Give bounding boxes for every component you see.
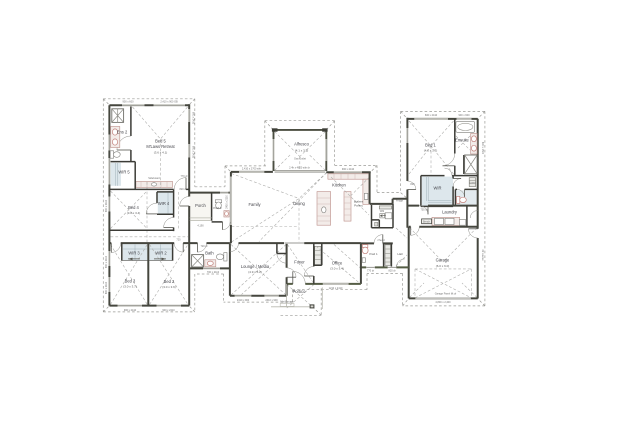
svg-text:2410 x 2110: 2410 x 2110 [226,195,229,209]
svg-text:Bed 2: Bed 2 [164,279,175,284]
svg-text:WM: WM [380,210,384,213]
svg-text:900 x 2410: 900 x 2410 [124,309,137,312]
svg-text:WIR 2: WIR 2 [155,251,167,256]
svg-text:Office: Office [332,261,343,266]
svg-text:Foyer: Foyer [294,260,305,265]
svg-text:(3.0 x 3.7): (3.0 x 3.7) [123,285,137,289]
svg-text:820 dr: 820 dr [388,270,395,273]
svg-text:Pantry: Pantry [354,203,363,207]
svg-text:(4.1 x 3.5): (4.1 x 3.5) [295,148,309,152]
svg-text:Mat Recess: Mat Recess [280,300,294,303]
svg-text:4,190: 4,190 [197,225,204,228]
svg-text:2,410 x 900 OB: 2,410 x 900 OB [160,101,178,104]
svg-text:Portico: Portico [293,289,306,294]
svg-text:700 x 2110: 700 x 2110 [207,271,220,274]
svg-text:820: 820 [410,183,415,186]
svg-text:Kitchen: Kitchen [332,182,346,187]
svg-text:Garage Panel lift dr: Garage Panel lift dr [435,293,457,296]
svg-text:(3.6 x 4.1): (3.6 x 4.1) [154,151,168,155]
svg-text:600 x 2110: 600 x 2110 [105,281,108,294]
svg-text:Family: Family [248,202,261,207]
svg-text:Bath: Bath [205,251,214,256]
svg-text:Ensuite: Ensuite [455,138,469,143]
svg-text:WIR 5: WIR 5 [118,169,130,174]
svg-text:Lounge / Media: Lounge / Media [241,264,270,269]
svg-text:M'Laws Retreat: M'Laws Retreat [146,144,175,149]
svg-text:Linen: Linen [469,181,476,184]
svg-text:720: 720 [176,239,181,242]
svg-text:2410 x 900: 2410 x 900 [265,299,278,302]
svg-text:Fridge: Fridge [396,200,404,203]
svg-text:Ens 2: Ens 2 [117,129,128,134]
svg-text:WIR: WIR [434,185,442,190]
svg-text:720 dr: 720 dr [200,245,207,248]
svg-text:600 x 2410: 600 x 2410 [425,114,438,117]
svg-text:WIR 4: WIR 4 [158,201,170,206]
svg-text:Gas Outlet: Gas Outlet [294,157,306,160]
svg-text:Pwd 1: Pwd 1 [369,252,378,256]
svg-text:Pwd 2: Pwd 2 [213,206,222,210]
svg-text:820 dr: 820 dr [179,188,186,191]
svg-text:Porch: Porch [195,203,206,208]
svg-text:900 x 2410: 900 x 2410 [342,168,355,171]
svg-text:(3.0 x 3.4): (3.0 x 3.4) [127,211,141,215]
svg-text:900 x 2110: 900 x 2110 [105,199,108,212]
svg-text:900 x 2410: 900 x 2410 [162,309,175,312]
svg-text:Sideboard: Sideboard [148,177,160,180]
svg-text:600 x 1500: 600 x 1500 [481,142,484,155]
svg-text:WIR 3: WIR 3 [128,251,140,256]
svg-text:900 x 600: 900 x 600 [123,101,135,104]
svg-text:Laundry: Laundry [442,210,458,215]
svg-text:2,410 x 2700 stkr: 2,410 x 2700 stkr [242,167,261,170]
svg-text:Alfresco: Alfresco [294,141,310,146]
svg-text:Bed 5: Bed 5 [155,138,166,143]
svg-text:2.4h x 4820 stkr dr: 2.4h x 4820 stkr dr [289,167,310,170]
svg-text:(3.0 x 3.6): (3.0 x 3.6) [162,285,176,289]
svg-text:Bench: Bench [423,220,431,223]
svg-text:900 x 2410: 900 x 2410 [192,112,195,125]
svg-text:Bed 4: Bed 4 [128,205,139,210]
svg-text:r/head: r/head [377,239,385,242]
svg-text:Garage: Garage [436,257,450,262]
svg-text:4,800 x 2,400: 4,800 x 2,400 [435,301,451,304]
svg-text:(4.0 x 3.7): (4.0 x 3.7) [424,148,438,152]
svg-text:(6.0 x 6.0): (6.0 x 6.0) [436,264,450,268]
svg-text:1210 x 2410: 1210 x 2410 [329,287,343,290]
svg-text:755 dr: 755 dr [420,208,427,211]
svg-text:Hall: Hall [397,252,403,256]
svg-text:770 dr: 770 dr [180,175,187,178]
svg-text:Dining: Dining [293,201,305,206]
svg-text:900 x 2110: 900 x 2110 [105,255,108,268]
svg-text:22 course: 22 course [481,250,484,262]
svg-text:770 dr: 770 dr [367,270,374,273]
svg-text:2410 x 900: 2410 x 900 [237,299,250,302]
svg-text:Bed 1: Bed 1 [425,142,436,147]
svg-text:(4.9 x 5.2): (4.9 x 5.2) [248,270,262,274]
svg-text:Bed 3: Bed 3 [125,279,136,284]
svg-text:900 x 900: 900 x 900 [459,114,471,117]
svg-text:(3.0 x 3.4): (3.0 x 3.4) [330,267,344,271]
svg-text:900 x 2410: 900 x 2410 [192,146,195,159]
